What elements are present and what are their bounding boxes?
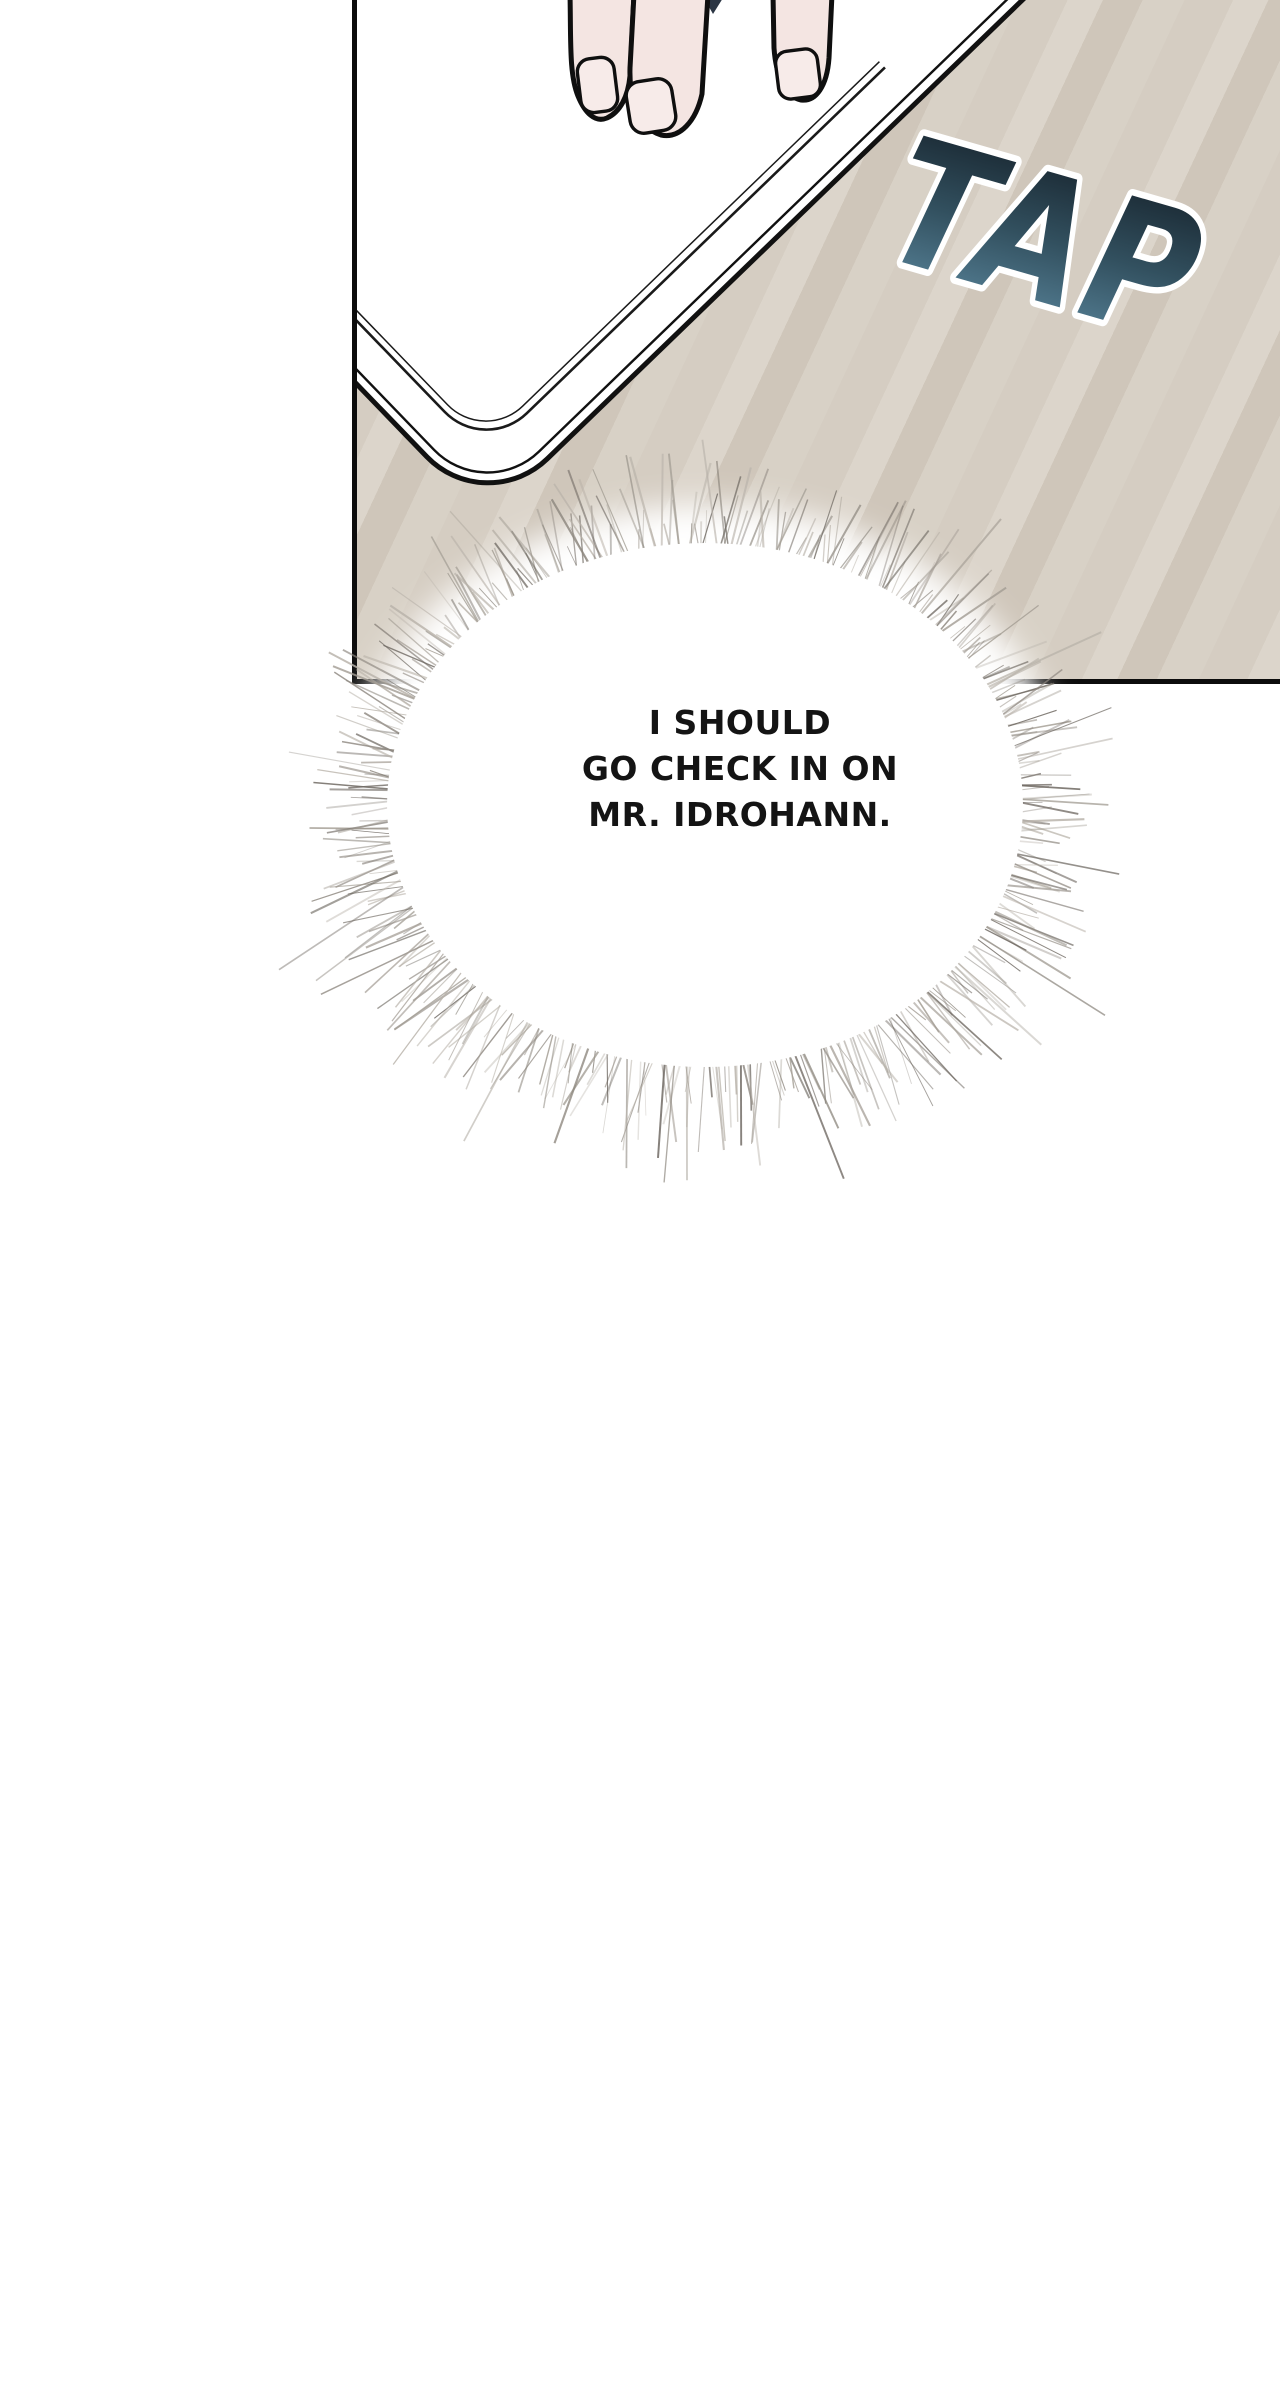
tap-sfx-text: TAP [866, 99, 1223, 375]
thought-line: MR. IDROHANN. [582, 792, 898, 838]
tap-sfx: TAP [850, 95, 1240, 375]
thought-text: I SHOULD GO CHECK IN ON MR. IDROHANN. [582, 700, 898, 838]
thought-line: I SHOULD [582, 700, 898, 746]
comic-page: { "page": { "background_color": "#ffffff… [0, 0, 1280, 2400]
thought-line: GO CHECK IN ON [582, 746, 898, 792]
